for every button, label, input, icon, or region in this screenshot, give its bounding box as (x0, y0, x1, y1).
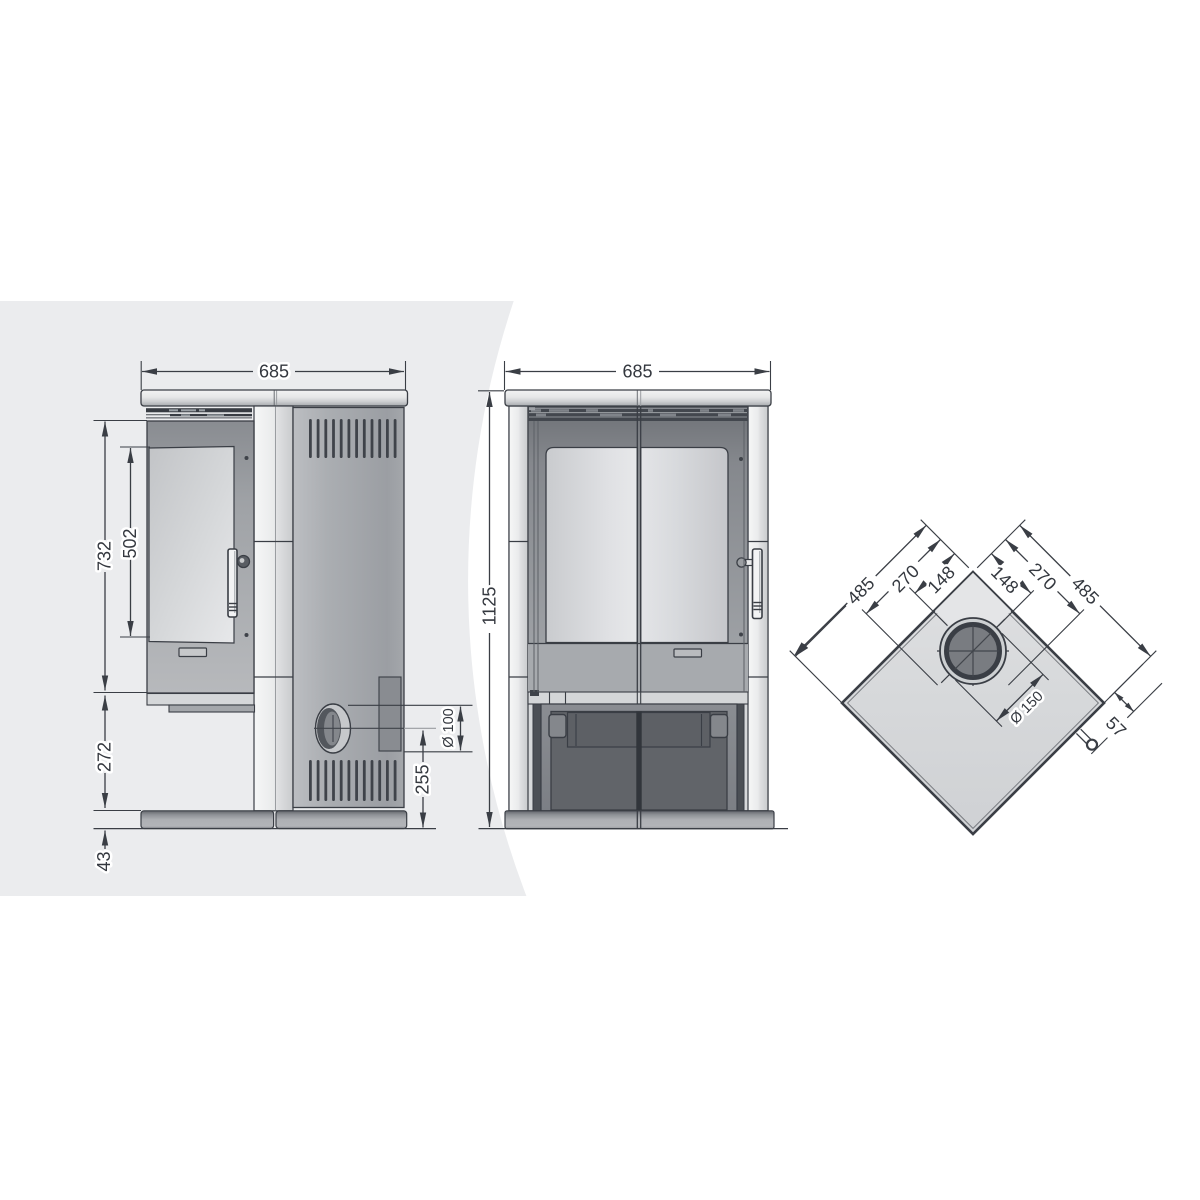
svg-text:685: 685 (622, 362, 652, 382)
svg-text:732: 732 (95, 541, 115, 571)
svg-text:272: 272 (95, 742, 115, 772)
svg-text:502: 502 (120, 528, 140, 558)
svg-text:1125: 1125 (480, 587, 500, 626)
svg-text:685: 685 (259, 362, 289, 382)
svg-text:Ø 100: Ø 100 (441, 708, 457, 748)
svg-text:255: 255 (413, 764, 433, 794)
svg-text:43: 43 (94, 851, 114, 871)
